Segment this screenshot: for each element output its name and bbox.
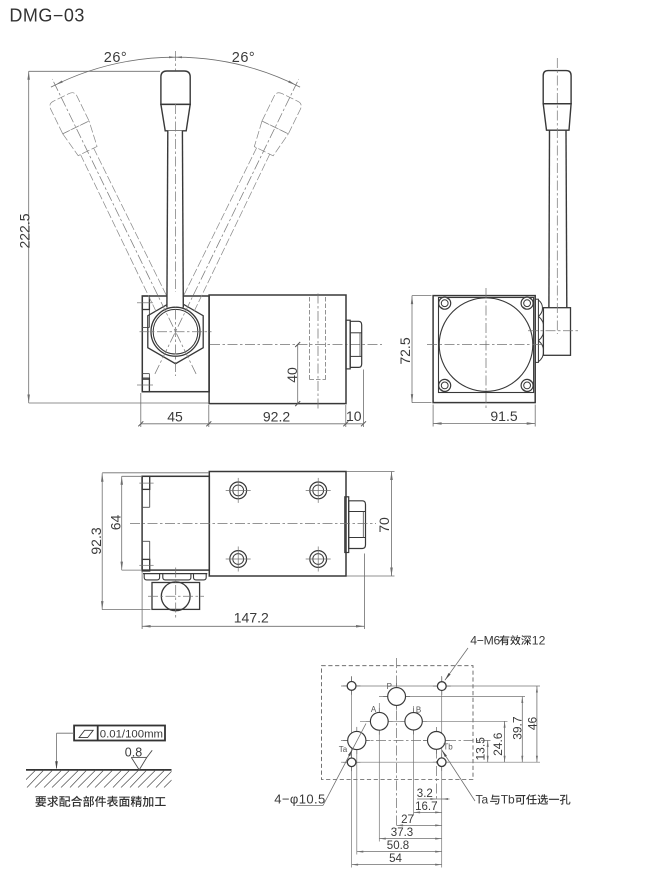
svg-text:46: 46 bbox=[525, 717, 539, 731]
svg-text:DMG−03: DMG−03 bbox=[9, 5, 85, 25]
svg-text:147.2: 147.2 bbox=[234, 609, 269, 625]
svg-text:222.5: 222.5 bbox=[17, 213, 33, 248]
svg-text:26°: 26° bbox=[104, 50, 127, 66]
svg-text:37.3: 37.3 bbox=[391, 827, 413, 839]
svg-text:16.7: 16.7 bbox=[415, 801, 437, 813]
svg-text:50.8: 50.8 bbox=[387, 840, 409, 852]
svg-text:70: 70 bbox=[376, 517, 392, 533]
svg-text:92.2: 92.2 bbox=[263, 408, 290, 424]
svg-text:Ta: Ta bbox=[476, 793, 489, 807]
svg-text:64: 64 bbox=[107, 515, 123, 531]
svg-text:45: 45 bbox=[167, 408, 183, 424]
svg-text:A: A bbox=[371, 705, 377, 714]
svg-text:4−φ10.5: 4−φ10.5 bbox=[274, 792, 325, 807]
svg-text:B: B bbox=[416, 706, 421, 715]
svg-text:24.6: 24.6 bbox=[491, 732, 505, 756]
svg-text:92.3: 92.3 bbox=[88, 527, 104, 554]
svg-text:26°: 26° bbox=[232, 50, 255, 66]
svg-text:Tb: Tb bbox=[443, 743, 453, 752]
svg-text:12: 12 bbox=[532, 633, 546, 647]
svg-text:39.7: 39.7 bbox=[511, 716, 525, 740]
svg-text:27: 27 bbox=[401, 814, 414, 826]
svg-text:72.5: 72.5 bbox=[397, 337, 413, 364]
svg-text:Ta: Ta bbox=[339, 745, 348, 754]
svg-text:0.01/100mm: 0.01/100mm bbox=[100, 728, 163, 740]
svg-text:91.5: 91.5 bbox=[490, 408, 517, 424]
svg-text:4−M6: 4−M6 bbox=[470, 633, 500, 647]
svg-text:3.2: 3.2 bbox=[417, 788, 433, 800]
svg-text:40: 40 bbox=[284, 367, 300, 383]
svg-text:13.5: 13.5 bbox=[474, 737, 488, 761]
svg-text:54: 54 bbox=[389, 853, 402, 865]
svg-text:P: P bbox=[387, 682, 392, 691]
svg-text:Tb: Tb bbox=[501, 793, 515, 807]
svg-text:10: 10 bbox=[346, 408, 362, 424]
